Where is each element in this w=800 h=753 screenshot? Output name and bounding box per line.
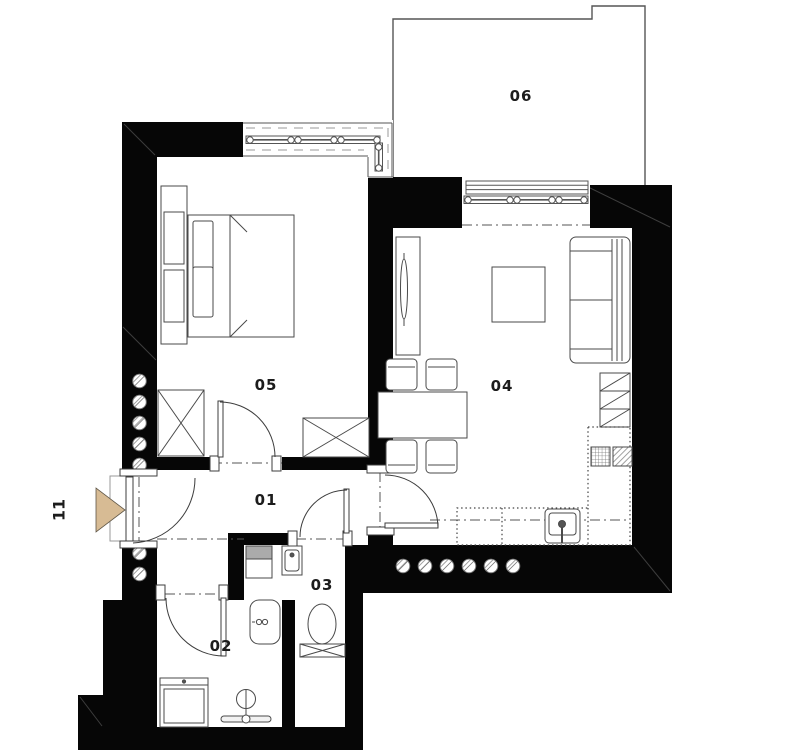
floor-plan: 01 02 03 04 05 06 11 <box>0 0 800 753</box>
room-label-05: 05 <box>255 376 278 394</box>
bed-icon <box>188 215 294 337</box>
coffee-table-icon <box>492 267 545 322</box>
cooktop-icon <box>591 447 632 466</box>
washing-machine-icon <box>160 678 208 727</box>
kitchen-counter-icon <box>457 427 630 545</box>
wc-washbasin-icon <box>282 546 302 575</box>
wc-door <box>288 489 352 546</box>
room-label-06: 06 <box>510 87 533 105</box>
bathroom-washbasin-icon <box>250 600 280 644</box>
shelf-unit-icon <box>600 373 630 427</box>
living-room-window <box>462 181 590 228</box>
toilet-icon <box>300 604 345 657</box>
shower-icon <box>221 690 271 724</box>
room-label-04: 04 <box>491 377 514 395</box>
wc-cabinet-icon <box>246 546 272 578</box>
room-label-02: 02 <box>210 637 233 655</box>
nightstand-icon <box>161 186 187 344</box>
entrance-label: 11 <box>50 499 69 521</box>
sofa-icon <box>570 237 630 363</box>
room-label-03: 03 <box>311 576 334 594</box>
bedroom-door <box>210 401 281 471</box>
room-label-01: 01 <box>255 491 278 509</box>
dining-set-icon <box>378 359 467 473</box>
bedroom-window <box>243 120 393 178</box>
floor-plan-drawing <box>0 0 800 753</box>
sink-icon <box>545 509 580 543</box>
living-room-door <box>367 465 438 535</box>
tv-cabinet-icon <box>396 237 420 355</box>
